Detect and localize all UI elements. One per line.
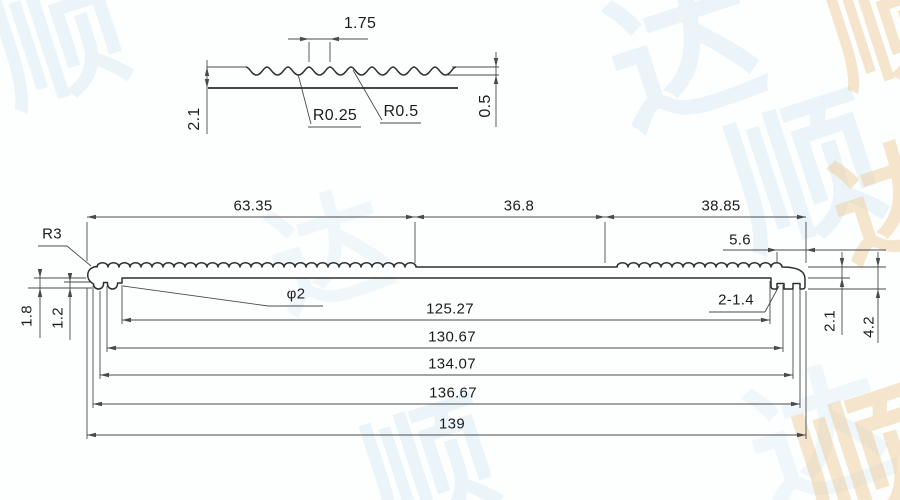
detail-pitch-label: 1.75 (344, 15, 376, 33)
top-dim-2-label: 36.8 (504, 198, 534, 215)
drawing-canvas: 顺 达 顺 达 顺 达 顺 达 顺 1.75 R0.25 R0.5 2.1 0.… (0, 0, 900, 500)
bottom-dim-2-label: 130.67 (428, 329, 476, 346)
detail-height-label: 2.1 (186, 107, 204, 130)
corner-radius-label: R3 (42, 226, 62, 243)
bottom-dim-1-label: 125.27 (426, 301, 474, 318)
left-dim-1-label: 1.8 (19, 305, 36, 327)
bottom-dim-5-label: 139 (439, 416, 465, 433)
hole-dia-label: φ2 (287, 286, 306, 303)
rib-spec-label: 2-1.4 (718, 292, 754, 309)
top-dim-3-label: 38.85 (701, 198, 740, 215)
left-dim-2-label: 1.2 (50, 307, 67, 329)
right-dim-1-label: 2.1 (822, 310, 839, 332)
detail-crest-radius-label: R0.5 (384, 103, 419, 121)
bottom-dim-4-label: 136.67 (429, 385, 477, 402)
bottom-dim-3-label: 134.07 (428, 356, 476, 373)
edge-width-label: 5.6 (729, 232, 751, 249)
right-dim-2-label: 4.2 (861, 316, 878, 338)
detail-depth-label: 0.5 (477, 94, 495, 117)
detail-valley-radius-label: R0.25 (313, 107, 357, 125)
top-dim-1-label: 63.35 (233, 198, 272, 215)
